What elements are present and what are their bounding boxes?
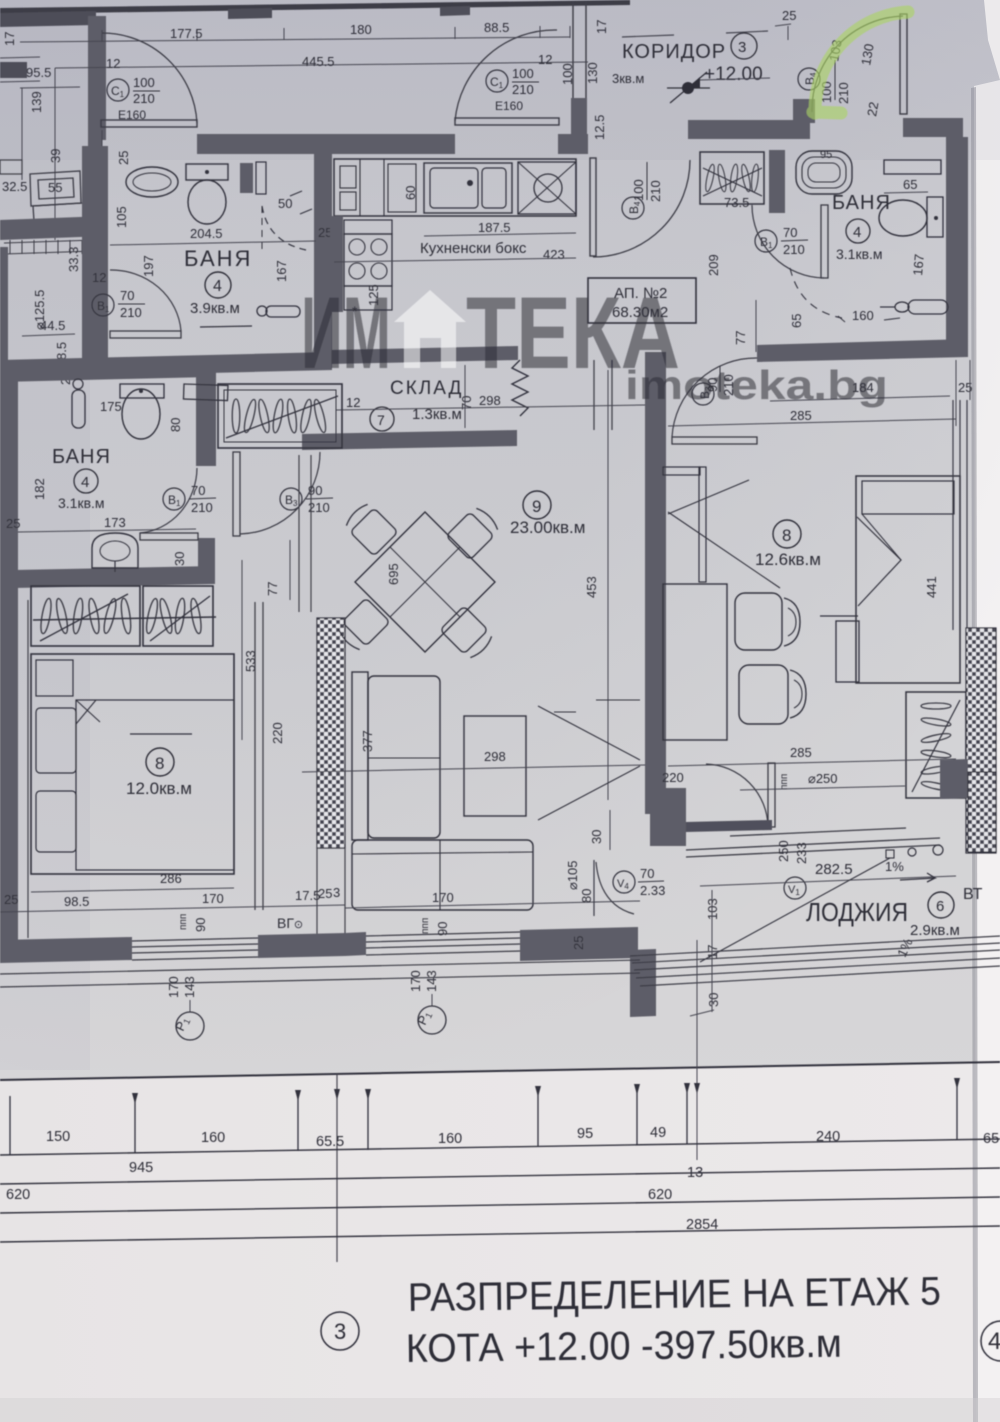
svg-text:17.5: 17.5 [295, 888, 320, 903]
svg-text:90: 90 [435, 922, 450, 936]
svg-text:imoteka.bg: imoteka.bg [625, 362, 888, 408]
svg-text:ппп: ппп [178, 914, 189, 930]
svg-text:4: 4 [988, 1328, 1000, 1355]
svg-text:620: 620 [6, 1187, 30, 1203]
svg-text:98.5: 98.5 [64, 894, 89, 909]
svg-text:3.1кв.м: 3.1кв.м [58, 495, 105, 511]
svg-text:30: 30 [172, 552, 187, 566]
svg-text:95.5: 95.5 [26, 65, 51, 80]
svg-text:ппп: ппп [779, 774, 790, 790]
svg-text:150: 150 [46, 1129, 70, 1145]
svg-text:6: 6 [936, 898, 944, 915]
svg-text:12.6кв.м: 12.6кв.м [755, 550, 821, 569]
svg-text:2.33: 2.33 [640, 883, 665, 898]
svg-text:167: 167 [274, 260, 289, 282]
svg-text:1%: 1% [885, 859, 904, 874]
svg-text:25: 25 [782, 8, 796, 23]
svg-text:СКЛАД: СКЛАД [390, 378, 463, 399]
svg-text:3: 3 [333, 885, 340, 900]
svg-text:4: 4 [853, 224, 861, 241]
svg-text:173: 173 [104, 515, 126, 530]
svg-text:60: 60 [403, 186, 418, 200]
svg-text:197: 197 [141, 255, 156, 277]
svg-text:12: 12 [538, 52, 552, 67]
svg-text:9: 9 [532, 497, 541, 516]
svg-text:233: 233 [794, 842, 809, 864]
svg-text:8.5: 8.5 [54, 342, 69, 360]
svg-text:143: 143 [182, 976, 197, 998]
svg-text:РАЗПРЕДЕЛЕНИЕ НА ЕТАЖ 5: РАЗПРЕДЕЛЕНИЕ НА ЕТАЖ 5 [408, 1269, 941, 1320]
svg-text:286: 286 [160, 871, 182, 886]
svg-text:17: 17 [594, 20, 609, 34]
svg-text:695: 695 [386, 563, 401, 585]
svg-text:95: 95 [577, 1126, 593, 1142]
svg-text:80: 80 [168, 418, 183, 432]
svg-text:⌀250: ⌀250 [808, 771, 838, 786]
svg-text:945: 945 [129, 1160, 153, 1176]
svg-text:12: 12 [92, 270, 106, 285]
svg-text:39: 39 [48, 149, 63, 163]
svg-text:БАНЯ: БАНЯ [52, 446, 111, 468]
svg-text:3: 3 [738, 39, 746, 56]
svg-text:170: 170 [202, 891, 224, 906]
svg-text:100: 100 [560, 63, 575, 85]
svg-text:3.9кв.м: 3.9кв.м [190, 300, 240, 317]
svg-text:33.3: 33.3 [66, 247, 81, 272]
svg-text:ВТ: ВТ [963, 886, 983, 903]
svg-text:70: 70 [640, 866, 654, 881]
svg-text:298: 298 [484, 749, 506, 764]
svg-text:25: 25 [116, 151, 131, 165]
svg-text:105: 105 [114, 206, 129, 228]
svg-text:70: 70 [783, 225, 797, 240]
svg-text:187.5: 187.5 [478, 220, 511, 235]
svg-text:E160: E160 [495, 99, 523, 113]
svg-text:210: 210 [783, 242, 805, 257]
svg-text:70: 70 [191, 483, 205, 498]
svg-text:50: 50 [278, 196, 292, 211]
svg-text:30: 30 [706, 993, 721, 1007]
svg-text:7: 7 [377, 412, 385, 428]
svg-text:285: 285 [790, 745, 812, 760]
svg-text:220: 220 [270, 722, 285, 744]
svg-text:4: 4 [213, 278, 222, 295]
svg-text:32.5: 32.5 [2, 179, 27, 194]
svg-text:90: 90 [193, 918, 208, 932]
svg-text:209: 209 [706, 254, 721, 276]
svg-text:175: 175 [100, 399, 122, 414]
svg-text:⌀105: ⌀105 [565, 860, 580, 890]
svg-text:620: 620 [648, 1187, 672, 1203]
svg-text:182: 182 [32, 478, 47, 500]
svg-text:44.5: 44.5 [40, 318, 65, 333]
svg-text:139: 139 [29, 91, 44, 113]
svg-text:100: 100 [631, 179, 646, 201]
svg-text:КОРИДОР: КОРИДОР [622, 41, 726, 63]
svg-text:3кв.м: 3кв.м [612, 71, 644, 86]
svg-text:8: 8 [782, 526, 791, 545]
svg-text:533: 533 [243, 650, 258, 672]
svg-text:167: 167 [910, 253, 927, 276]
svg-text:160: 160 [201, 1130, 225, 1146]
svg-text:453: 453 [584, 576, 599, 598]
svg-text:95: 95 [820, 149, 832, 161]
svg-text:210: 210 [512, 82, 534, 97]
svg-text:77: 77 [733, 331, 748, 345]
svg-text:БАНЯ: БАНЯ [832, 192, 891, 214]
svg-text:423: 423 [543, 247, 565, 262]
svg-text:ппп: ппп [420, 918, 431, 934]
svg-text:210: 210 [836, 82, 851, 104]
svg-text:88.5: 88.5 [484, 20, 509, 35]
svg-text:30: 30 [589, 830, 604, 844]
svg-text:77: 77 [265, 582, 280, 596]
svg-text:250: 250 [776, 840, 791, 862]
svg-text:160: 160 [852, 308, 874, 323]
svg-text:3.1кв.м: 3.1кв.м [836, 246, 883, 262]
svg-text:55: 55 [48, 180, 62, 195]
svg-text:8: 8 [155, 754, 164, 773]
svg-text:80: 80 [579, 889, 594, 903]
svg-text:КОТА +12.00 -397.50кв.м: КОТА +12.00 -397.50кв.м [406, 1322, 843, 1371]
svg-text:65.5: 65.5 [316, 1134, 344, 1150]
svg-text:100: 100 [133, 75, 155, 90]
svg-text:17: 17 [2, 32, 17, 46]
svg-text:170: 170 [166, 976, 181, 998]
svg-text:285: 285 [790, 408, 812, 423]
svg-text:210: 210 [133, 91, 155, 106]
svg-text:12: 12 [346, 395, 360, 410]
svg-text:220: 220 [662, 770, 684, 785]
svg-text:25: 25 [6, 516, 20, 531]
svg-text:170: 170 [408, 970, 423, 992]
svg-text:180: 180 [350, 22, 372, 37]
svg-text:23.00кв.м: 23.00кв.м [510, 518, 585, 537]
svg-text:130: 130 [585, 62, 600, 84]
svg-text:22: 22 [864, 101, 881, 118]
svg-text:12.5: 12.5 [592, 115, 607, 140]
svg-text:12: 12 [106, 56, 120, 71]
svg-text:E160: E160 [118, 108, 146, 122]
svg-text:65: 65 [903, 177, 917, 192]
svg-text:49: 49 [650, 1125, 666, 1141]
svg-text:298: 298 [479, 393, 501, 408]
svg-text:170: 170 [432, 890, 454, 905]
svg-text:70: 70 [120, 288, 134, 303]
svg-text:100: 100 [512, 66, 534, 81]
svg-text:2.9кв.м: 2.9кв.м [910, 922, 960, 939]
svg-text:282.5: 282.5 [815, 861, 853, 878]
svg-text:25: 25 [571, 936, 586, 950]
svg-text:ЛОДЖИЯ: ЛОДЖИЯ [806, 897, 908, 927]
svg-text:143: 143 [424, 970, 439, 992]
svg-text:+12.00: +12.00 [704, 64, 763, 85]
svg-text:204.5: 204.5 [190, 226, 223, 241]
svg-text:160: 160 [438, 1131, 462, 1147]
svg-text:ИМ: ИМ [301, 276, 391, 390]
svg-text:210: 210 [191, 500, 213, 515]
svg-text:445.5: 445.5 [302, 54, 335, 69]
svg-text:441: 441 [924, 576, 939, 598]
svg-text:3: 3 [334, 1319, 346, 1344]
svg-text:Кухненски бокс: Кухненски бокс [420, 240, 527, 257]
svg-text:12.0кв.м: 12.0кв.м [126, 779, 192, 798]
svg-text:177.5: 177.5 [170, 26, 203, 41]
svg-text:4: 4 [81, 474, 89, 491]
svg-text:73.5: 73.5 [724, 195, 749, 210]
svg-text:210: 210 [120, 305, 142, 320]
svg-text:25: 25 [318, 886, 332, 901]
svg-text:65: 65 [789, 314, 804, 328]
svg-text:БАНЯ: БАНЯ [184, 246, 252, 271]
svg-text:25: 25 [4, 892, 18, 907]
svg-text:210: 210 [648, 180, 663, 202]
svg-text:240: 240 [816, 1129, 840, 1145]
